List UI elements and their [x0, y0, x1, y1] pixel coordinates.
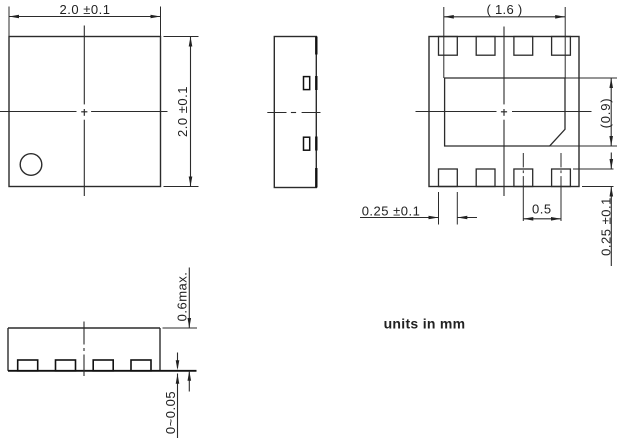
svg-text:(0.9): (0.9) [598, 98, 613, 129]
svg-text:0.5: 0.5 [532, 202, 552, 217]
svg-text:0.25 ±0.1: 0.25 ±0.1 [362, 203, 421, 218]
svg-text:0.25 ±0.1: 0.25 ±0.1 [599, 197, 614, 256]
svg-text:2.0 ±0.1: 2.0 ±0.1 [175, 86, 190, 137]
svg-text:0~0.05: 0~0.05 [163, 391, 178, 434]
svg-text:units in mm: units in mm [384, 316, 466, 332]
svg-text:( 1.6 ): ( 1.6 ) [486, 2, 522, 17]
svg-text:2.0 ±0.1: 2.0 ±0.1 [60, 2, 111, 17]
svg-text:0.6max.: 0.6max. [175, 272, 190, 322]
